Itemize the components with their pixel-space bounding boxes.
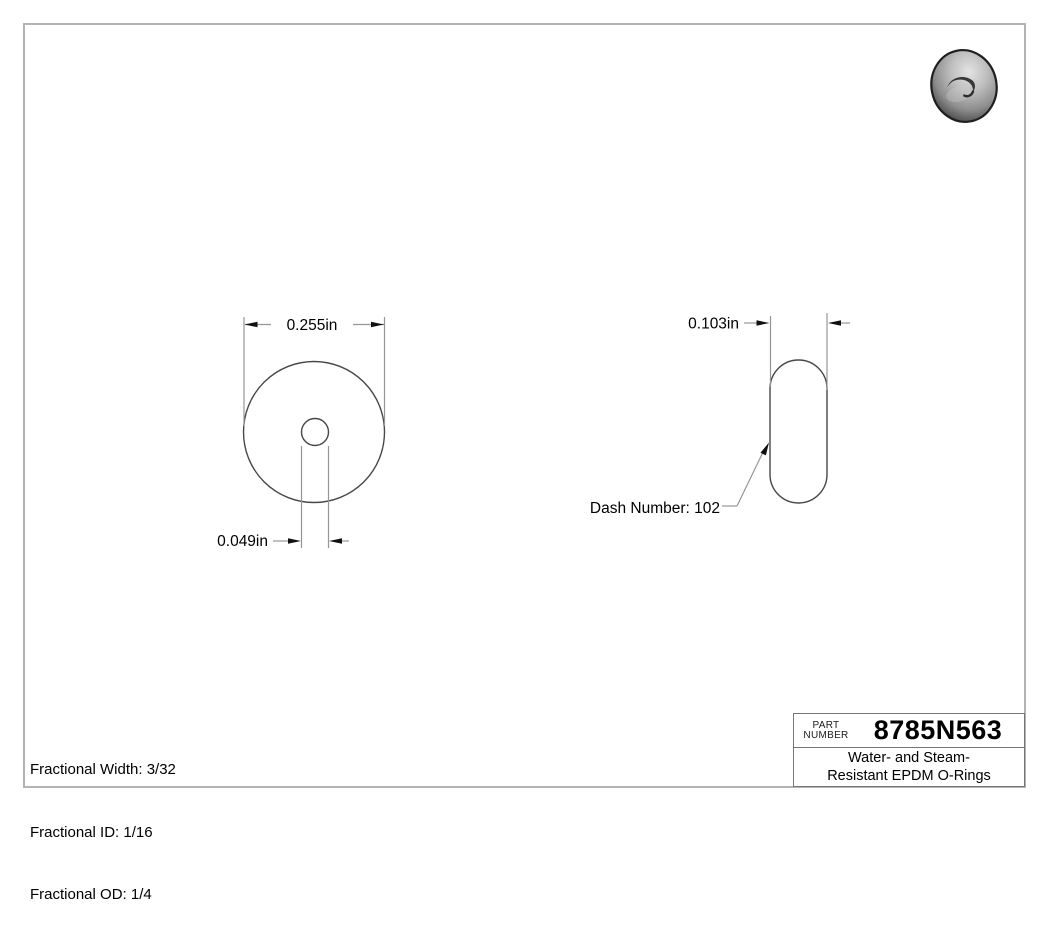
fractional-notes: Fractional Width: 3/32 Fractional ID: 1/… <box>30 719 176 926</box>
dash-number-leader: Dash Number: 102 <box>590 443 769 518</box>
title-block: PART NUMBER 8785N563 Water- and Steam- R… <box>793 713 1025 787</box>
width-arrow-right-icon <box>828 320 841 325</box>
side-view: 0.103in Dash Number: 102 <box>590 313 850 517</box>
id-dimension: 0.049in <box>217 446 349 550</box>
part-number-caption: PART NUMBER <box>794 721 858 740</box>
side-view-capsule <box>770 360 827 503</box>
title-block-part-row: PART NUMBER 8785N563 <box>794 714 1024 748</box>
part-caption-line2: NUMBER <box>794 731 858 741</box>
od-arrow-left-icon <box>245 322 258 328</box>
note-fractional-width: Fractional Width: 3/32 <box>30 760 176 781</box>
torus-body <box>926 46 1003 126</box>
id-arrow-left-icon <box>288 538 301 543</box>
width-dimension-label: 0.103in <box>688 316 739 333</box>
od-arrow-right-icon <box>371 322 384 328</box>
dash-number-label: Dash Number: 102 <box>590 500 720 517</box>
od-dimension: 0.255in <box>244 317 385 426</box>
width-arrow-left-icon <box>757 320 770 325</box>
o-ring-3d-render <box>926 46 1004 126</box>
technical-drawing-canvas: 0.255in 0.049in 0.103in <box>0 0 1050 811</box>
od-dimension-label: 0.255in <box>287 317 338 334</box>
description-line1: Water- and Steam- <box>794 749 1024 768</box>
title-block-description: Water- and Steam- Resistant EPDM O-Rings <box>794 748 1024 786</box>
front-view-inner-circle <box>302 419 329 446</box>
front-view: 0.255in 0.049in <box>217 317 384 550</box>
front-view-outer-circle <box>244 362 385 503</box>
leader-line <box>737 449 765 506</box>
part-number: 8785N563 <box>858 715 1024 746</box>
note-fractional-id: Fractional ID: 1/16 <box>30 823 176 844</box>
description-line2: Resistant EPDM O-Rings <box>794 767 1024 786</box>
note-fractional-od: Fractional OD: 1/4 <box>30 885 176 906</box>
id-arrow-right-icon <box>329 538 342 543</box>
id-dimension-label: 0.049in <box>217 533 268 550</box>
